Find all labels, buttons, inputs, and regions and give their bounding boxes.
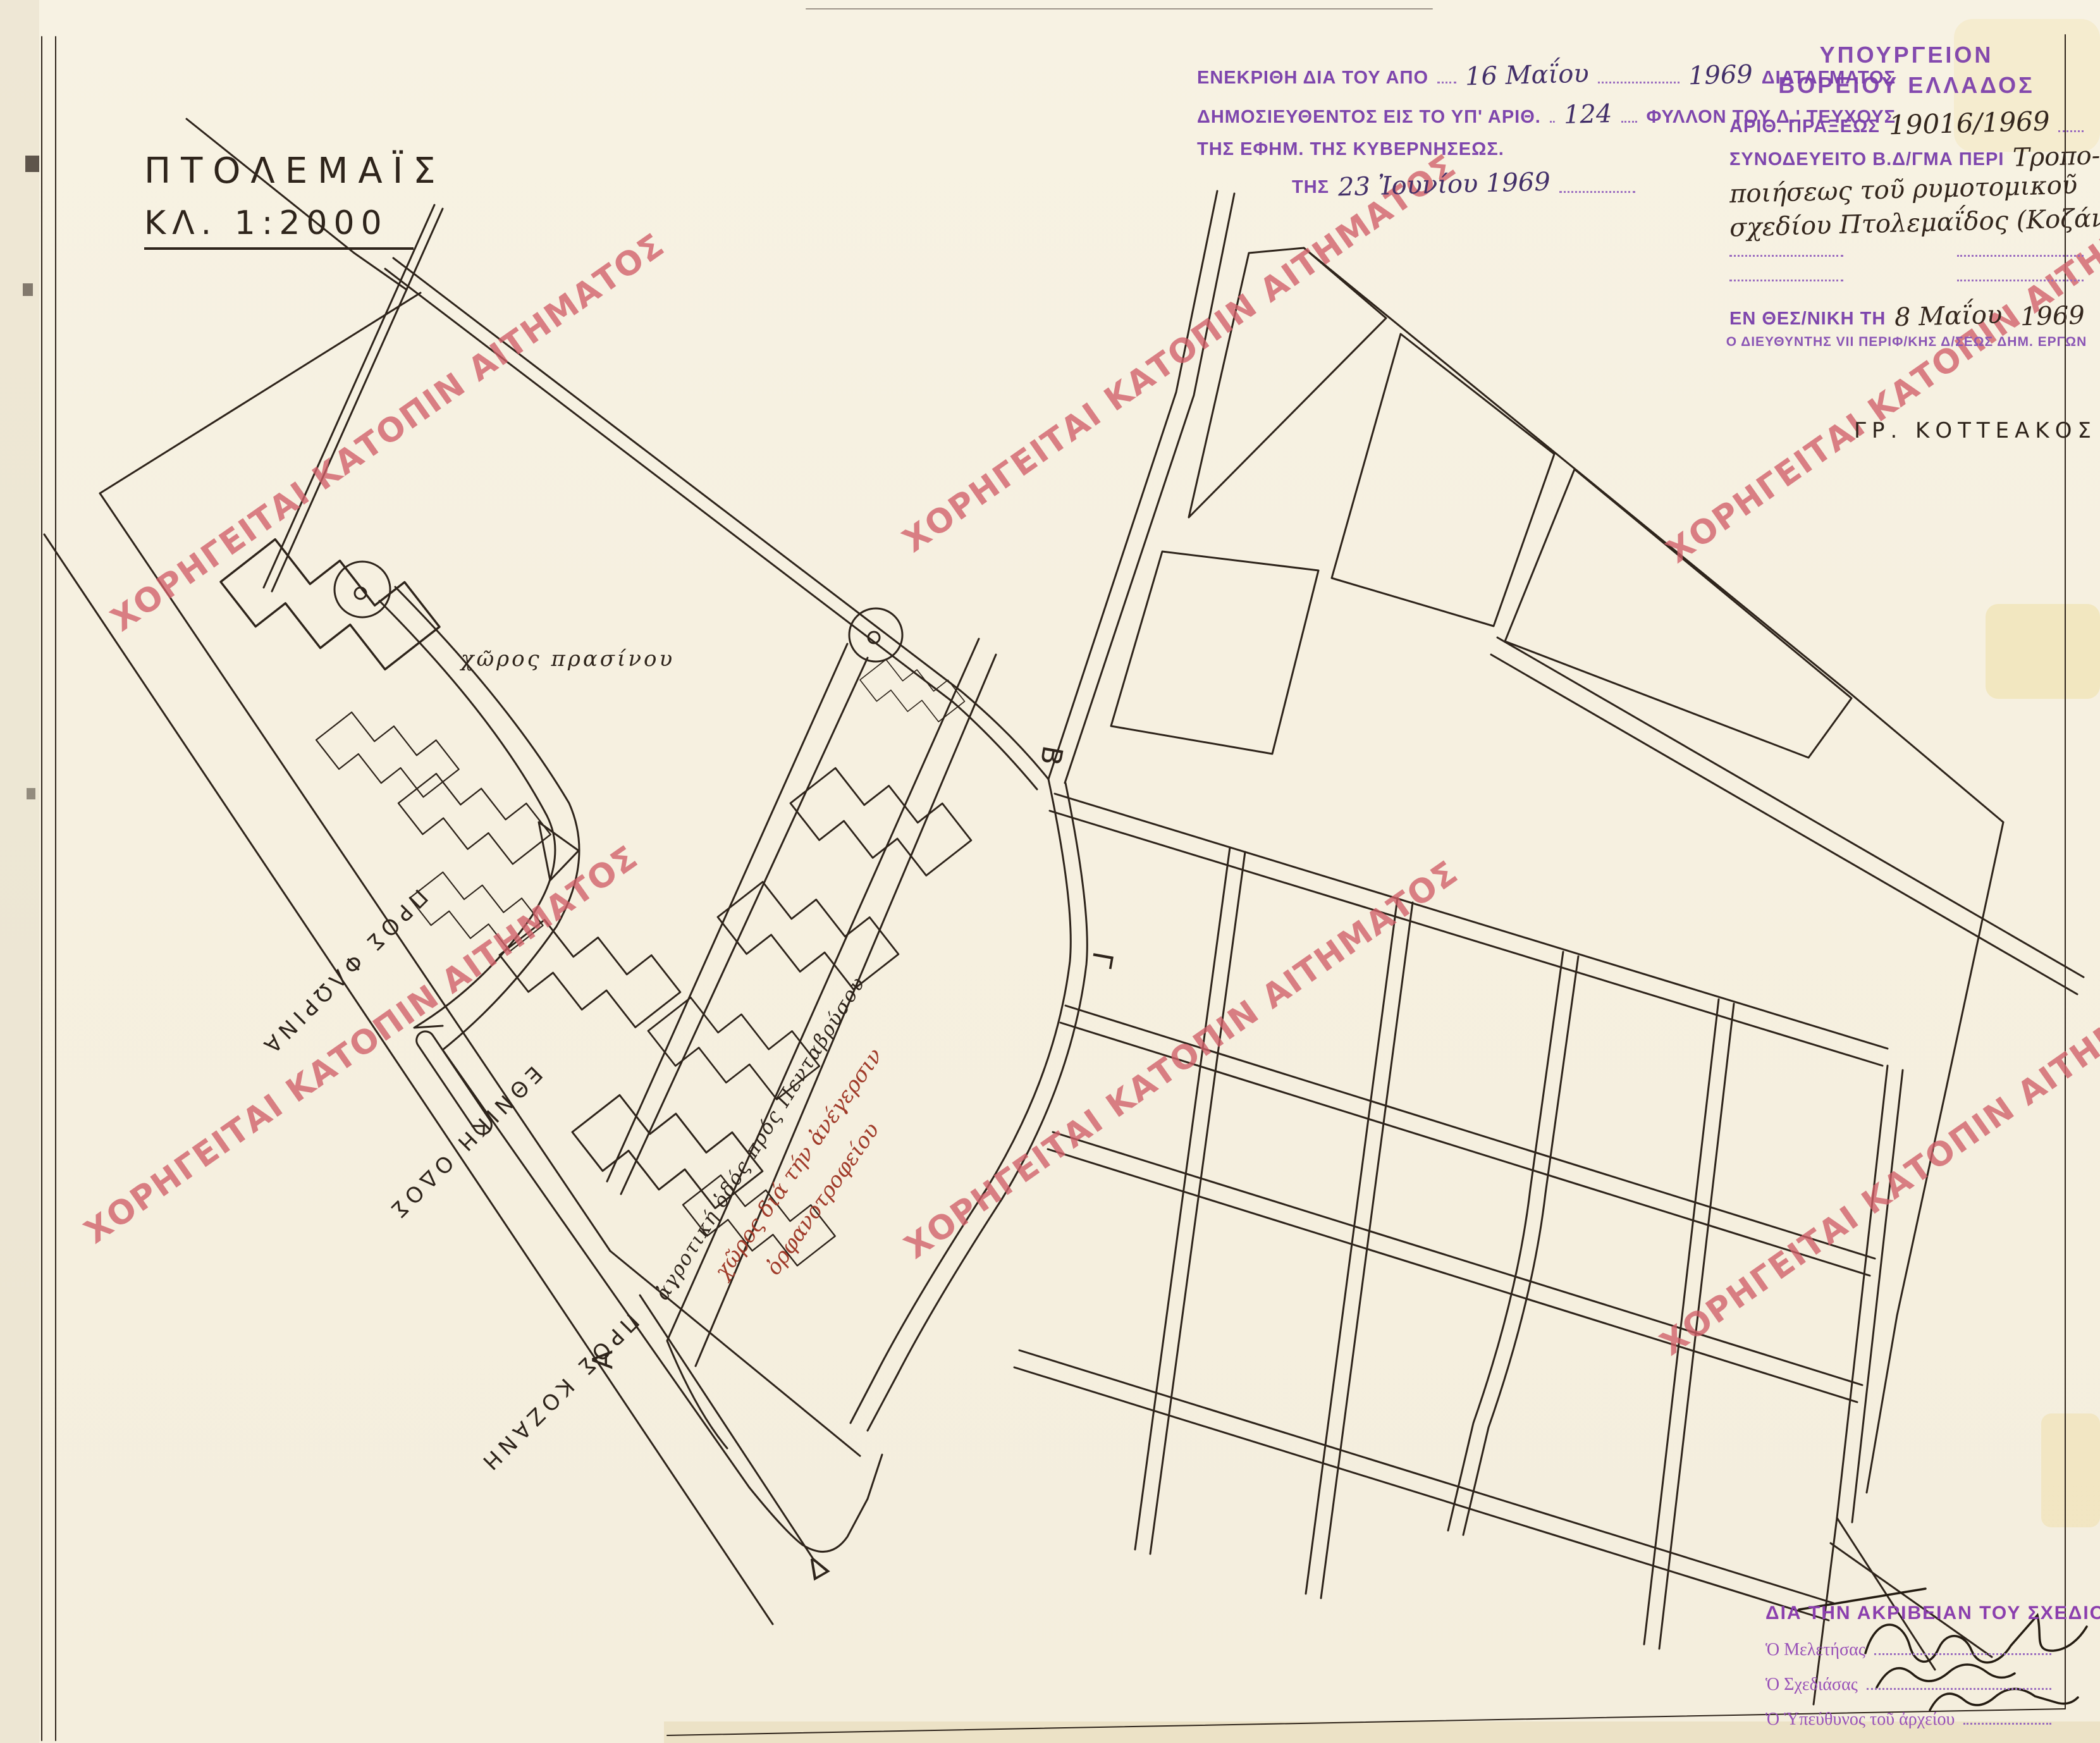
act-number-value: 19016/1969 [1888, 106, 2050, 141]
dotted-rule [1729, 274, 1843, 281]
map-scale: ΚΛ. 1:2000 [144, 200, 414, 250]
decree-label: ΣΥΝΟΔΕΥΕΙΤΟ Β.Δ/ΓΜΑ ΠΕΡΙ [1729, 149, 2004, 170]
building [316, 682, 459, 827]
scanned-town-plan-sheet: ΧΟΡΗΓΕΙΤΑΙ ΚΑΤΟΠΙΝ ΑΙΤΗΜΑΤΟΣ ΧΟΡΗΓΕΙΤΑΙ … [0, 0, 2100, 1743]
dotted-rule [1867, 1683, 2051, 1690]
surveyor-name-label: ΓΡ. ΚΟΤΤΕΑΚΟΣ [1854, 418, 2097, 443]
green-space-label: χῶρος πρασίνου [460, 646, 675, 672]
dotted-rule [1550, 116, 1556, 123]
decree-handwritten-3: σχεδίου Πτολεμαΐδος (Κοζάνης) [1729, 202, 2100, 242]
approval-line3: ΤΗΣ ΕΦΗΜ. ΤΗΣ ΚΥΒΕΡΝΗΣΕΩΣ. [1197, 139, 1504, 160]
approval-line1-prefix: ΕΝΕΚΡΙΘΗ ΔΙΑ ΤΟΥ ΑΠΟ [1197, 68, 1428, 89]
dotted-rule [1729, 250, 1843, 257]
certification-row-meletisas: Ὁ Μελετήσας [1765, 1640, 1865, 1660]
building [648, 961, 820, 1136]
certification-row-archive: Ὁ Ὑπεύθυνος τοῦ ἀρχείου [1765, 1709, 1955, 1730]
road-network [44, 119, 2084, 1704]
place-date-label: ΕΝ ΘΕΣ/ΝΙΚΗ ΤΗ [1729, 309, 1886, 330]
place-year-handwritten: 1969 [2020, 301, 2085, 332]
traffic-island-triangle [539, 822, 579, 880]
page-title: ΠΤΟΛΕΜΑΪΣ [144, 151, 446, 192]
dotted-rule [1963, 1718, 2051, 1725]
decree-handwritten-1: Τροπο- [2013, 141, 2100, 173]
watermark-text: ΧΟΡΗΓΕΙΤΑΙ ΚΑΤΟΠΙΝ ΑΙΤΗΜΑΤΟΣ [896, 147, 1463, 560]
point-label-alpha: Α [587, 1350, 619, 1369]
decree-handwritten-2: ποιήσεως τοῦ ρυμοτομικοῦ [1729, 171, 2077, 209]
national-road-label: ΕΘΝΙΚΗ ΟΔΟΣ [382, 1061, 547, 1226]
approval-issue-number: 124 [1564, 99, 1613, 130]
director-title-line: Ο ΔΙΕΥΘΥΝΤΗΣ VII ΠΕΡΙΦ/ΚΗΣ Δ/ΣΕΩΣ ΔΗΜ. Ε… [1726, 335, 2087, 350]
dotted-rule [1621, 116, 1638, 123]
dotted-rule [1598, 77, 1679, 83]
title-block: ΠΤΟΛΕΜΑΪΣ ΚΛ. 1:2000 [144, 151, 446, 250]
map-label-layer: χῶρος πρασίνου ΠΡΟΣ ΦΛΩΡΙΝΑ ΕΘΝΙΚΗ ΟΔΟΣ … [255, 418, 2097, 1587]
point-label-beta: Β [1034, 743, 1069, 768]
dotted-rule [2058, 125, 2084, 132]
certification-header: ΔΙΑ ΤΗΝ ΑΚΡΙΒΕΙΑΝ ΤΟΥ ΣΧΕΔΙΟΥ [1765, 1603, 2051, 1624]
certification-block: ΔΙΑ ΤΗΝ ΑΚΡΙΒΕΙΑΝ ΤΟΥ ΣΧΕΔΙΟΥ Ὁ Μελετήσα… [1765, 1603, 2051, 1730]
dotted-rule [1957, 274, 2084, 281]
dotted-rule [1437, 77, 1456, 83]
dotted-rule [1559, 186, 1635, 193]
approval-gazette-date: 23 Ἰουνίου 1969 [1338, 168, 1551, 202]
dotted-rule [1874, 1648, 2051, 1655]
road-national [44, 493, 860, 1624]
road-grid-rows [1014, 794, 1888, 1620]
ministry-header-line1: ΥΠΟΥΡΓΕΙΟΝ [1729, 42, 2084, 68]
certification-row-schediasas: Ὁ Σχεδιάσας [1765, 1675, 1858, 1695]
point-label-delta: Δ [801, 1549, 834, 1587]
act-number-label: ΑΡΙΘ. ΠΡΑΞΕΩΣ [1729, 116, 1880, 137]
building [790, 730, 971, 915]
ministry-header-line2: ΒΟΡΕΙΟΥ ΕΛΛΑΔΟΣ [1729, 72, 2084, 99]
approval-date-handwritten: 16 Μαΐου [1465, 59, 1590, 91]
approval-line4-prefix: ΤΗΣ [1292, 177, 1329, 198]
approval-line2-prefix: ΔΗΜΟΣΙΕΥΘΕΝΤΟΣ ΕΙΣ ΤΟ ΥΠ' ΑΡΙΘ. [1197, 107, 1541, 128]
point-label-gamma: Γ [1084, 949, 1119, 970]
dotted-rule [1957, 250, 2084, 257]
rural-road-label: ἀγροτική ὁδός πρός Πενταβρύσου [651, 972, 870, 1304]
road-north-approach [1048, 191, 1234, 783]
watermark-text: ΧΟΡΗΓΕΙΤΑΙ ΚΑΤΟΠΙΝ ΑΙΤΗΜΑΤΟΣ [78, 838, 645, 1251]
building [572, 1054, 763, 1248]
building [398, 741, 551, 897]
ministry-stamp: ΥΠΟΥΡΓΕΙΟΝ ΒΟΡΕΙΟΥ ΕΛΛΑΔΟΣ ΑΡΙΘ. ΠΡΑΞΕΩΣ… [1729, 42, 2084, 350]
place-date-handwritten: 8 Μαΐου [1894, 300, 2003, 332]
